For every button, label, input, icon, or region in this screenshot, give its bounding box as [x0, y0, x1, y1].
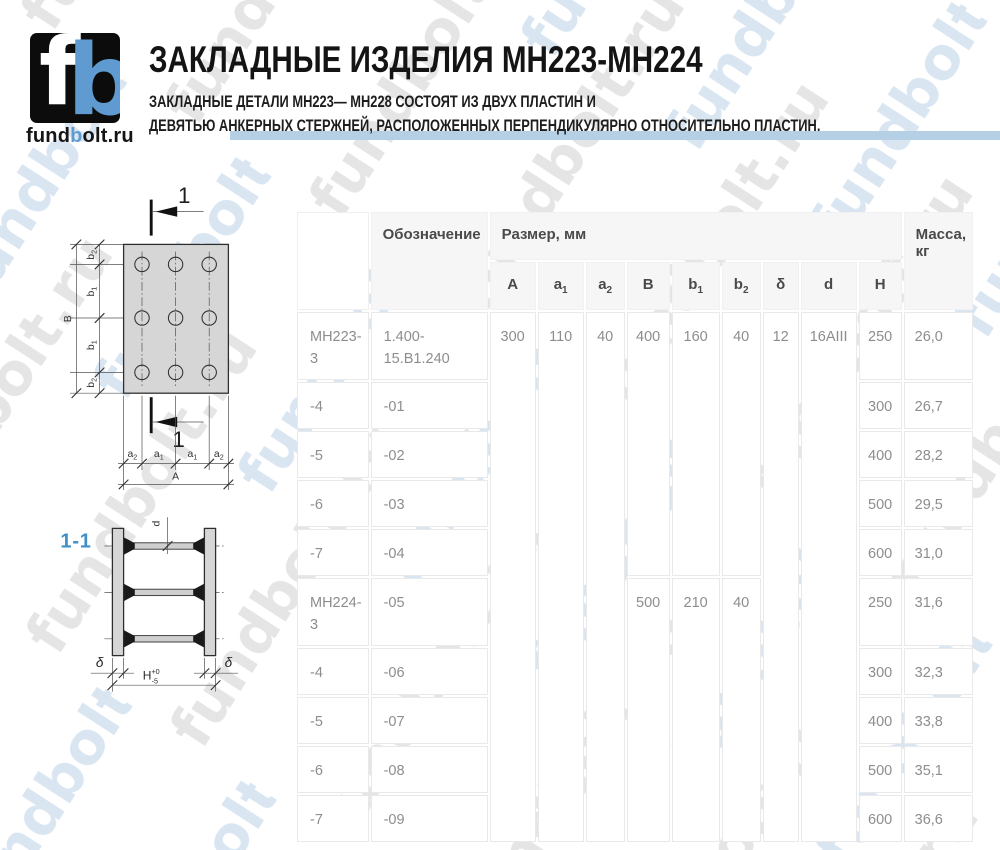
- col-header-mass: Масса, кг: [904, 212, 973, 310]
- table-row: МН224-3 -05 500 210 40 250 31,6: [297, 578, 973, 646]
- dim-label-delta-left: δ: [96, 655, 104, 670]
- page-root: fundbolt.ru fundbolt.ru f b fundbolt.ru …: [0, 0, 1000, 850]
- plan-view-drawing: 1: [63, 183, 234, 490]
- section-view-label: 1-1: [60, 531, 91, 553]
- cell-H: 600: [859, 795, 902, 842]
- cell-mass: 28,2: [904, 431, 973, 478]
- cell-b1: 160: [672, 312, 720, 576]
- cell-designation: -05: [371, 578, 488, 646]
- dim-label-b1-bottom: b1: [86, 340, 98, 350]
- cell-mass: 29,5: [904, 480, 973, 527]
- section-view-drawing: 1-1: [60, 517, 238, 691]
- logo-domain-b: b: [70, 125, 82, 147]
- logo-domain-suffix: olt.ru: [83, 125, 134, 147]
- section-arrow-bottom: [156, 417, 178, 427]
- cell-H: 400: [859, 431, 902, 478]
- col-header-b2: b2: [722, 262, 761, 310]
- cell-mass: 31,0: [904, 529, 973, 576]
- cell-name: МН223-3: [297, 312, 369, 380]
- cell-mass: 26,0: [904, 312, 973, 380]
- cell-a1: 110: [538, 312, 584, 842]
- cell-name: -5: [297, 431, 369, 478]
- dim-label-d: d: [152, 520, 163, 526]
- cell-A: 300: [490, 312, 536, 842]
- technical-drawing: 1: [0, 170, 300, 850]
- cell-designation: -07: [371, 697, 488, 744]
- cell-H: 250: [859, 312, 902, 380]
- cell-designation: 1.400-15.В1.240: [371, 312, 488, 380]
- cell-B: 500: [627, 578, 670, 842]
- cell-designation: -06: [371, 648, 488, 695]
- dim-label-B: B: [63, 315, 74, 322]
- col-header-size-group: Размер, мм: [490, 212, 902, 260]
- cell-H: 600: [859, 529, 902, 576]
- left-plate: [112, 528, 123, 655]
- dim-label-a1-left: a1: [154, 449, 164, 461]
- cell-H: 400: [859, 697, 902, 744]
- cell-H: 250: [859, 578, 902, 646]
- table-row: МН223-3 1.400-15.В1.240 300 110 40 400 1…: [297, 312, 973, 380]
- dim-label-b1-top: b1: [86, 287, 98, 297]
- cell-mass: 32,3: [904, 648, 973, 695]
- cell-a2: 40: [586, 312, 625, 842]
- cell-H: 500: [859, 480, 902, 527]
- dim-label-a2-left: a2: [128, 449, 138, 461]
- cell-name: -4: [297, 648, 369, 695]
- dim-label-delta-right: δ: [225, 655, 233, 670]
- col-header-designation: Обозначение: [371, 212, 488, 310]
- dim-label-b2-top: b2: [86, 250, 98, 260]
- col-header-b1: b1: [672, 262, 720, 310]
- cell-name: -6: [297, 480, 369, 527]
- cell-mass: 33,8: [904, 697, 973, 744]
- logo[interactable]: f b: [30, 33, 120, 123]
- cell-designation: -08: [371, 746, 488, 793]
- logo-letter-b: b: [67, 33, 120, 123]
- cell-B: 400: [627, 312, 670, 576]
- cell-b1: 210: [672, 578, 720, 842]
- cell-mass: 31,6: [904, 578, 973, 646]
- logo-domain-prefix: fund: [26, 125, 70, 147]
- header: ЗАКЛАДНЫЕ ИЗДЕЛИЯ МН223-МН224 ЗАКЛАДНЫЕ …: [149, 40, 1000, 139]
- anchor-rods: [124, 543, 205, 642]
- cell-name: -6: [297, 746, 369, 793]
- cell-mass: 26,7: [904, 382, 973, 429]
- cut-number-top: 1: [178, 183, 190, 208]
- cell-mass: 35,1: [904, 746, 973, 793]
- cell-name: -4: [297, 382, 369, 429]
- col-header-d: d: [801, 262, 857, 310]
- cell-d: 16АIII: [801, 312, 857, 842]
- cell-designation: -09: [371, 795, 488, 842]
- dim-label-b2-bottom: b2: [86, 378, 98, 388]
- section-arrow-top: [156, 206, 178, 216]
- plate-outline: [124, 244, 229, 393]
- cell-designation: -04: [371, 529, 488, 576]
- col-header-B: B: [627, 262, 670, 310]
- logo-domain-text[interactable]: fundbolt.ru: [26, 125, 134, 148]
- cell-designation: -02: [371, 431, 488, 478]
- cut-number-bottom: 1: [172, 427, 184, 452]
- col-header-H: H: [859, 262, 902, 310]
- subtitle-line-1: ЗАКЛАДНЫЕ ДЕТАЛИ МН223— МН228 СОСТОЯТ ИЗ…: [149, 93, 596, 111]
- spec-table: Обозначение Размер, мм Масса, кг A a1 a2…: [295, 210, 975, 844]
- col-header-a1: a1: [538, 262, 584, 310]
- cell-H: 300: [859, 382, 902, 429]
- cell-name: -7: [297, 795, 369, 842]
- dim-label-a2-right: a2: [214, 449, 224, 461]
- header-blank-cell: [297, 212, 369, 310]
- right-plate: [204, 528, 215, 655]
- cell-H: 500: [859, 746, 902, 793]
- cell-designation: -03: [371, 480, 488, 527]
- cell-b2: 40: [722, 578, 761, 842]
- cell-delta: 12: [763, 312, 799, 842]
- dim-label-a1-right: a1: [188, 449, 198, 461]
- cell-name: -5: [297, 697, 369, 744]
- col-header-a2: a2: [586, 262, 625, 310]
- col-header-A: A: [490, 262, 536, 310]
- dim-label-H: H+0-5: [143, 667, 160, 686]
- dim-label-A: A: [172, 472, 179, 483]
- col-header-delta: δ: [763, 262, 799, 310]
- cell-name: МН224-3: [297, 578, 369, 646]
- cell-name: -7: [297, 529, 369, 576]
- page-title: ЗАКЛАДНЫЕ ИЗДЕЛИЯ МН223-МН224: [149, 40, 838, 81]
- cell-H: 300: [859, 648, 902, 695]
- page-subtitle: ЗАКЛАДНЫЕ ДЕТАЛИ МН223— МН228 СОСТОЯТ ИЗ…: [149, 91, 820, 139]
- cell-b2: 40: [722, 312, 761, 576]
- cell-mass: 36,6: [904, 795, 973, 842]
- subtitle-line-2: ДЕВЯТЬЮ АНКЕРНЫХ СТЕРЖНЕЙ, РАСПОЛОЖЕННЫХ…: [149, 117, 820, 135]
- cell-designation: -01: [371, 382, 488, 429]
